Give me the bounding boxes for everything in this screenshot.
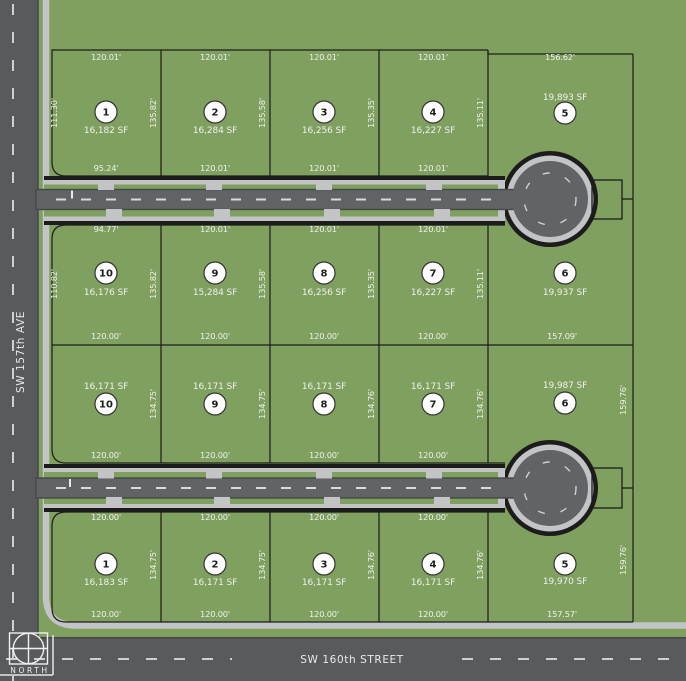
lot-dim-right: 135.58' <box>257 269 267 299</box>
lot-dim-top: 120.01' <box>309 52 339 62</box>
lot-dim-right: 135.11' <box>475 269 485 299</box>
lot-dim-right: 135.35' <box>366 98 376 128</box>
lot-dim-right: 134.75' <box>148 550 158 580</box>
lot-square-footage: 19,893 SF <box>543 93 587 103</box>
lot-number: 3 <box>321 560 328 571</box>
lot-dim-right: 135.11' <box>475 98 485 128</box>
lot-dim-right: 134.76' <box>366 550 376 580</box>
lot-number: 10 <box>99 269 113 280</box>
lot-dim-top: 120.01' <box>309 224 339 234</box>
lot-square-footage: 16,171 SF <box>84 382 128 392</box>
lot-square-footage: 16,171 SF <box>411 382 455 392</box>
lot-number: 5 <box>562 109 569 120</box>
lot-number: 6 <box>562 269 569 280</box>
lot-dim-bottom: 95.24' <box>94 163 119 173</box>
lot-dim-top: 120.01' <box>200 224 230 234</box>
lot-dim-bottom: 120.00' <box>309 331 339 341</box>
lot-dim-top: 120.00' <box>200 512 230 522</box>
subdivision-plat-drawing: 116,182 SF120.01'95.24'111.30'135.82'216… <box>0 0 686 681</box>
street-name-left: SW 157th AVE <box>15 311 27 393</box>
lot-square-footage: 19,987 SF <box>543 381 587 391</box>
lot-dim-bottom: 120.00' <box>309 450 339 460</box>
lot-dim-right: 159.76' <box>618 545 628 575</box>
lot-dim-bottom: 157.57' <box>547 609 577 619</box>
lot-number: 2 <box>212 560 219 571</box>
lot-number: 4 <box>430 108 437 119</box>
lot-dim-bottom: 120.01' <box>200 163 230 173</box>
lot-square-footage: 16,256 SF <box>302 126 346 136</box>
lot-dim-bottom: 120.00' <box>418 331 448 341</box>
lot-dim-bottom: 120.00' <box>200 331 230 341</box>
lot-number: 9 <box>212 400 219 411</box>
lot-dim-top: 120.01' <box>418 224 448 234</box>
lot-dim-right: 134.76' <box>366 389 376 419</box>
plat-map: 116,182 SF120.01'95.24'111.30'135.82'216… <box>0 0 686 681</box>
lot-dim-top: 94.77' <box>94 224 119 234</box>
lot-dim-right: 135.82' <box>148 98 158 128</box>
lot-dim-top: 120.01' <box>200 52 230 62</box>
north-label: NORTH <box>10 666 49 675</box>
lot-dim-right: 134.75' <box>257 389 267 419</box>
lot-dim-left: 110.82' <box>49 269 59 299</box>
lot-square-footage: 16,171 SF <box>193 578 237 588</box>
street-name-bottom: SW 160th STREET <box>300 654 404 666</box>
lot-dim-bottom: 120.01' <box>309 163 339 173</box>
lot-number: 2 <box>212 108 219 119</box>
lot-dim-top: 120.01' <box>91 52 121 62</box>
lot-dim-right: 134.75' <box>148 389 158 419</box>
lot-number: 8 <box>321 400 328 411</box>
lot-square-footage: 19,937 SF <box>543 288 587 298</box>
lot-square-footage: 16,171 SF <box>302 382 346 392</box>
lot-dim-right: 134.76' <box>475 389 485 419</box>
lot-number: 4 <box>430 560 437 571</box>
lot-number: 8 <box>321 269 328 280</box>
lot-dim-bottom: 120.00' <box>200 450 230 460</box>
lot-dim-top: 120.00' <box>309 512 339 522</box>
lot-square-footage: 16,171 SF <box>193 382 237 392</box>
lot-dim-top: 156.62' <box>545 52 575 62</box>
lot-dim-bottom: 120.00' <box>418 609 448 619</box>
lot-square-footage: 16,227 SF <box>411 126 455 136</box>
lot-dim-bottom: 120.00' <box>91 450 121 460</box>
lot-square-footage: 16,176 SF <box>84 288 128 298</box>
lot-square-footage: 16,171 SF <box>411 578 455 588</box>
lot-number: 1 <box>103 108 110 119</box>
lot-dim-top: 120.00' <box>418 512 448 522</box>
lot-number: 10 <box>99 400 113 411</box>
lot-number: 1 <box>103 560 110 571</box>
lot-dim-right: 134.76' <box>475 550 485 580</box>
lot-number: 6 <box>562 399 569 410</box>
lot-square-footage: 16,227 SF <box>411 288 455 298</box>
lot-dim-bottom: 120.00' <box>91 609 121 619</box>
lot-square-footage: 16,171 SF <box>302 578 346 588</box>
lot-square-footage: 16,182 SF <box>84 126 128 136</box>
lot-dim-left: 111.30' <box>49 98 59 128</box>
lot-square-footage: 16,183 SF <box>84 578 128 588</box>
lot-square-footage: 19,970 SF <box>543 577 587 587</box>
lot-dim-bottom: 120.00' <box>91 331 121 341</box>
lot-dim-bottom: 157.09' <box>547 331 577 341</box>
lot-dim-top: 120.01' <box>418 52 448 62</box>
lot-dim-bottom: 120.00' <box>418 450 448 460</box>
lot-dim-right: 135.82' <box>148 269 158 299</box>
lot-dim-right: 134.75' <box>257 550 267 580</box>
lot-number: 9 <box>212 269 219 280</box>
lot-number: 7 <box>430 400 437 411</box>
lot-dim-bottom: 120.00' <box>309 609 339 619</box>
lot-square-footage: 16,284 SF <box>193 126 237 136</box>
lot-dim-bottom: 120.00' <box>200 609 230 619</box>
lot-dim-right: 135.35' <box>366 269 376 299</box>
lot-dim-bottom: 120.01' <box>418 163 448 173</box>
lot-square-footage: 15,284 SF <box>193 288 237 298</box>
lot-number: 7 <box>430 269 437 280</box>
lot-dim-right: 135.58' <box>257 98 267 128</box>
lot-number: 3 <box>321 108 328 119</box>
lot-dim-right: 159.76' <box>618 385 628 415</box>
lot-number: 5 <box>562 560 569 571</box>
lot-dim-top: 120.00' <box>91 512 121 522</box>
lot-square-footage: 16,256 SF <box>302 288 346 298</box>
